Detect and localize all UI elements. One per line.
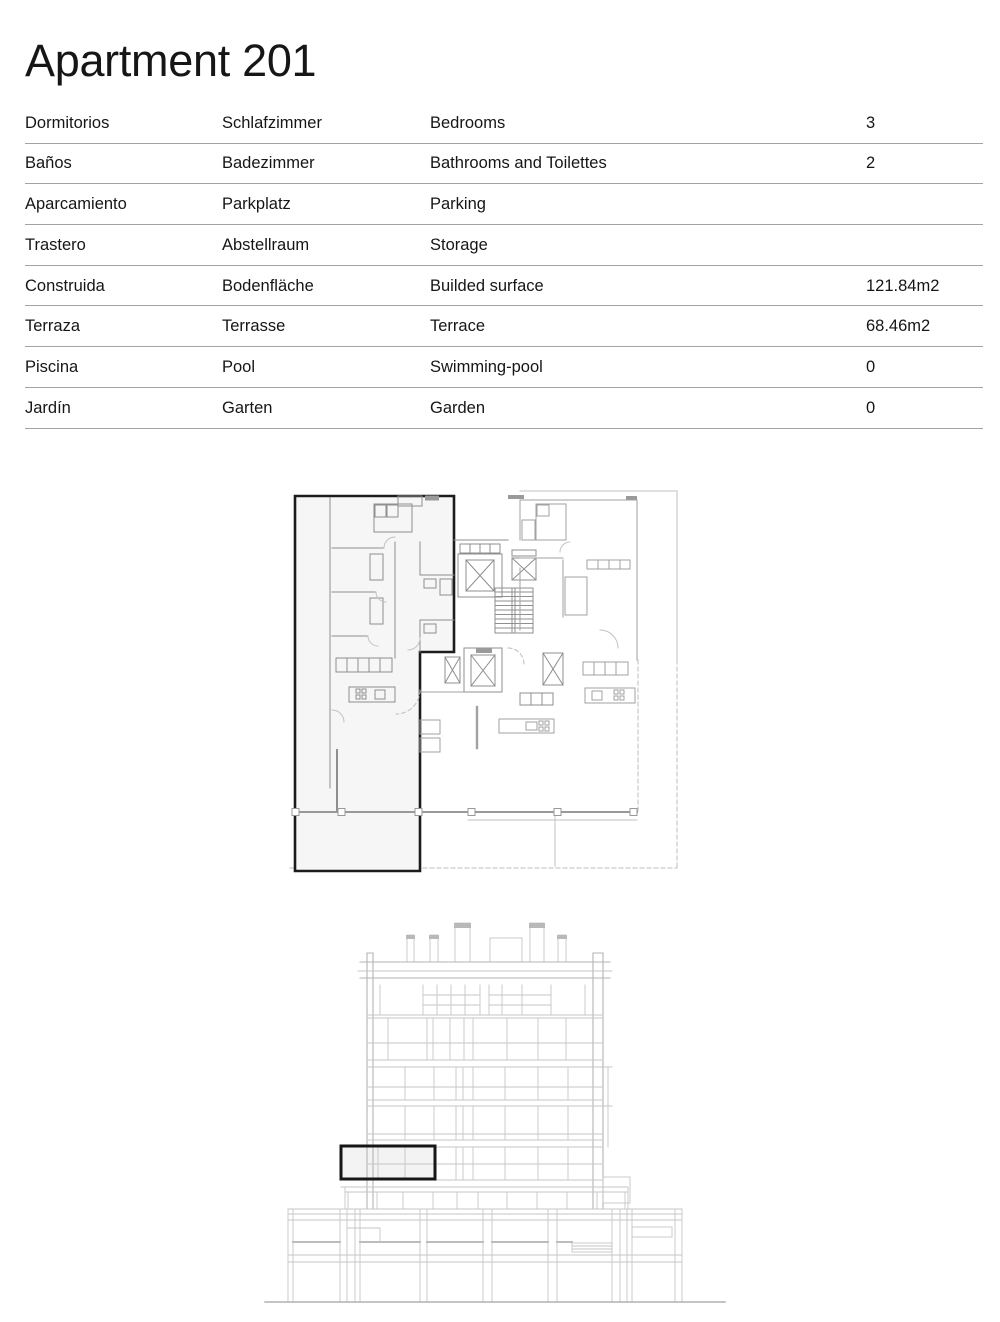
label-es: Dormitorios (25, 114, 222, 132)
setback-tier (345, 1187, 628, 1209)
label-en: Garden (430, 399, 866, 417)
label-de: Schlafzimmer (222, 114, 430, 132)
label-en: Bathrooms and Toilettes (430, 154, 866, 172)
right-apartment (520, 500, 638, 811)
label-de: Badezimmer (222, 154, 430, 172)
stairs (495, 588, 533, 633)
spec-row-bathrooms: Baños Badezimmer Bathrooms and Toilettes… (25, 144, 983, 185)
value: 2 (866, 154, 983, 172)
label-es: Baños (25, 154, 222, 172)
building-elevation-figure (260, 915, 740, 1305)
value: 68.46m2 (866, 317, 983, 335)
spec-row-bedrooms: Dormitorios Schlafzimmer Bedrooms 3 (25, 103, 983, 144)
label-en: Storage (430, 236, 866, 254)
value: 121.84m2 (866, 277, 983, 295)
spec-row-terrace: Terraza Terrasse Terrace 68.46m2 (25, 306, 983, 347)
label-es: Jardín (25, 399, 222, 417)
label-es: Aparcamiento (25, 195, 222, 213)
label-de: Bodenfläche (222, 277, 430, 295)
spec-row-storage: Trastero Abstellraum Storage (25, 225, 983, 266)
value: 0 (866, 358, 983, 376)
label-en: Builded surface (430, 277, 866, 295)
label-en: Parking (430, 195, 866, 213)
label-en: Swimming-pool (430, 358, 866, 376)
page-title: Apartment 201 (25, 38, 316, 83)
label-es: Terraza (25, 317, 222, 335)
spec-table: Dormitorios Schlafzimmer Bedrooms 3 Baño… (25, 103, 983, 429)
label-en: Terrace (430, 317, 866, 335)
label-es: Trastero (25, 236, 222, 254)
label-de: Abstellraum (222, 236, 430, 254)
label-es: Construida (25, 277, 222, 295)
label-de: Pool (222, 358, 430, 376)
spec-row-built-surface: Construida Bodenfläche Builded surface 1… (25, 266, 983, 307)
podium (288, 1209, 682, 1302)
label-de: Parkplatz (222, 195, 430, 213)
value: 0 (866, 399, 983, 417)
middle-apartment (420, 648, 554, 752)
label-de: Garten (222, 399, 430, 417)
spec-row-garden: Jardín Garten Garden 0 (25, 388, 983, 429)
spec-row-parking: Aparcamiento Parkplatz Parking (25, 184, 983, 225)
label-de: Terrasse (222, 317, 430, 335)
value: 3 (866, 114, 983, 132)
chimneys (406, 923, 567, 962)
elevator-core (445, 540, 563, 705)
floor-plan-figure (270, 480, 690, 880)
label-es: Piscina (25, 358, 222, 376)
label-en: Bedrooms (430, 114, 866, 132)
elevation-highlight-fill (341, 1146, 435, 1179)
spec-row-pool: Piscina Pool Swimming-pool 0 (25, 347, 983, 388)
highlighted-apartment-outline (295, 496, 454, 871)
